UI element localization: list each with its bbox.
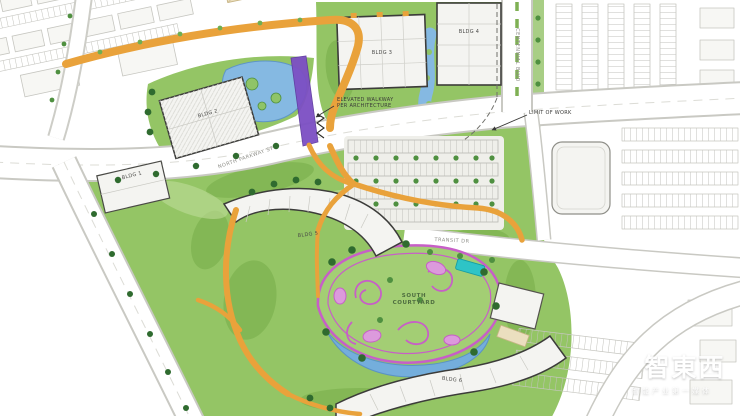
robot-logo-icon [618, 355, 640, 377]
building-4 [437, 3, 501, 85]
watermark-tagline: 智能产业第一媒体 [612, 386, 732, 396]
context-right-building [552, 128, 738, 229]
watermark-brand: 智東西 [644, 348, 725, 384]
watermark: 智東西 智能产业第一媒体 [612, 348, 732, 396]
site-plan-map: BLDG 1 BLDG 2 BLDG 3 BLDG 4 BLDG 5 BLDG … [0, 0, 740, 416]
